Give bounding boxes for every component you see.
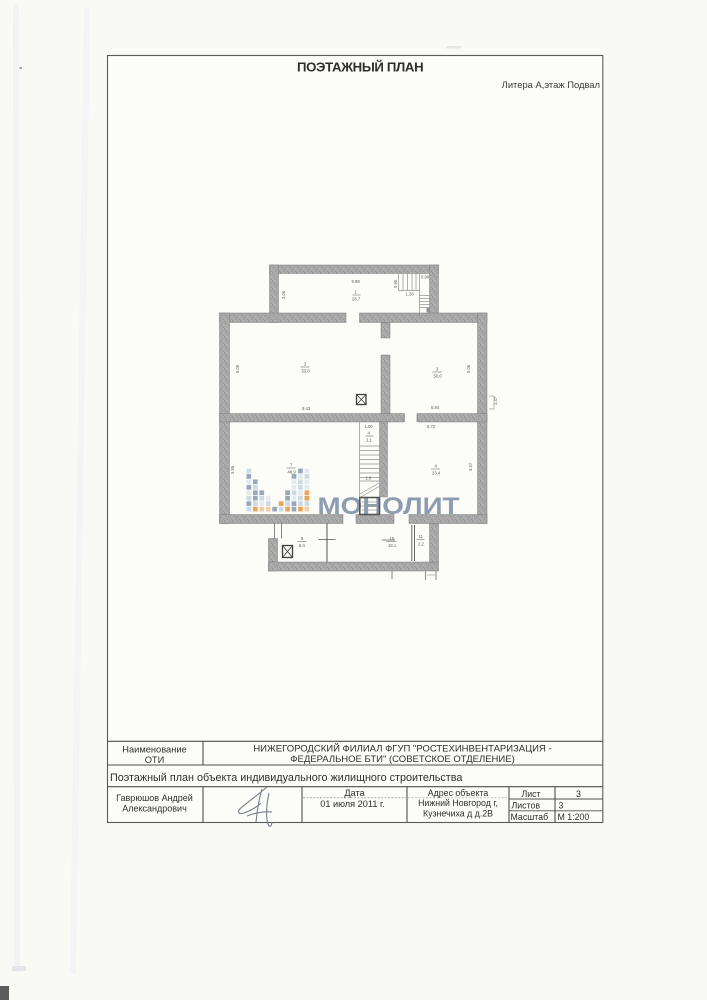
svg-text:9.98: 9.98: [352, 279, 361, 284]
svg-text:Адрес объекта: Адрес объекта: [428, 788, 489, 798]
svg-text:Масштаб: Масштаб: [511, 812, 549, 822]
svg-text:53.8: 53.8: [302, 369, 311, 374]
svg-text:28.7: 28.7: [352, 297, 361, 302]
svg-text:5.72: 5.72: [427, 424, 436, 429]
svg-text:18.1: 18.1: [388, 543, 397, 548]
svg-text:3.06: 3.06: [281, 290, 286, 299]
svg-text:Наименование: Наименование: [122, 745, 186, 755]
svg-text:Поэтажный план объекта индивид: Поэтажный план объекта индивидуального ж…: [110, 772, 462, 784]
svg-text:15: 15: [390, 536, 395, 541]
svg-text:5.95: 5.95: [230, 465, 235, 474]
svg-text:1.47: 1.47: [493, 396, 498, 405]
svg-text:50.0: 50.0: [434, 374, 443, 379]
svg-text:1.28: 1.28: [406, 292, 415, 297]
svg-text:ОТИ: ОТИ: [145, 755, 165, 765]
svg-text:Литера А,этаж Подвал: Литера А,этаж Подвал: [502, 79, 600, 90]
svg-text:8.4: 8.4: [299, 543, 305, 548]
svg-text:ФЕДЕРАЛЬНОЕ БТИ" (СОВЕТСКОЕ ОТ: ФЕДЕРАЛЬНОЕ БТИ" (СОВЕТСКОЕ ОТДЕЛЕНИЕ): [290, 754, 514, 765]
svg-text:23.4: 23.4: [432, 471, 441, 476]
svg-text:3: 3: [559, 801, 564, 811]
svg-text:Гаврюшов Андрей: Гаврюшов Андрей: [116, 793, 193, 803]
svg-text:Александрович: Александрович: [122, 804, 187, 814]
svg-text:5.84: 5.84: [431, 405, 440, 410]
svg-text:01 июля 2011 г.: 01 июля 2011 г.: [320, 799, 385, 809]
svg-text:3: 3: [576, 789, 581, 799]
svg-text:Дата: Дата: [344, 788, 365, 798]
svg-text:46.9: 46.9: [288, 470, 297, 475]
svg-text:Листов: Листов: [512, 801, 541, 811]
svg-text:0.90: 0.90: [421, 275, 430, 280]
svg-text:5.06: 5.06: [235, 364, 240, 373]
svg-text:ПОЭТАЖНЫЙ ПЛАН: ПОЭТАЖНЫЙ ПЛАН: [297, 60, 424, 75]
svg-text:Нижний Новгород г,: Нижний Новгород г,: [418, 798, 498, 808]
svg-text:5.06: 5.06: [466, 364, 471, 373]
svg-text:М 1:200: М 1:200: [558, 812, 590, 822]
svg-text:Лист: Лист: [521, 789, 540, 799]
svg-text:Кузнечиха д д.2В: Кузнечиха д д.2В: [423, 809, 493, 819]
svg-text:2.6: 2.6: [366, 476, 372, 481]
svg-text:11: 11: [419, 534, 424, 539]
svg-text:1.00: 1.00: [365, 424, 374, 429]
svg-text:НИЖЕГОРОДСКИЙ ФИЛИАЛ ФГУП "РОС: НИЖЕГОРОДСКИЙ ФИЛИАЛ ФГУП "РОСТЕХИНВЕНТА…: [253, 743, 551, 755]
svg-text:3.57: 3.57: [468, 462, 473, 471]
svg-text:1.1: 1.1: [366, 438, 372, 443]
svg-text:0.90: 0.90: [393, 279, 398, 288]
svg-text:9.43: 9.43: [302, 406, 311, 411]
svg-text:2.2: 2.2: [418, 542, 424, 547]
